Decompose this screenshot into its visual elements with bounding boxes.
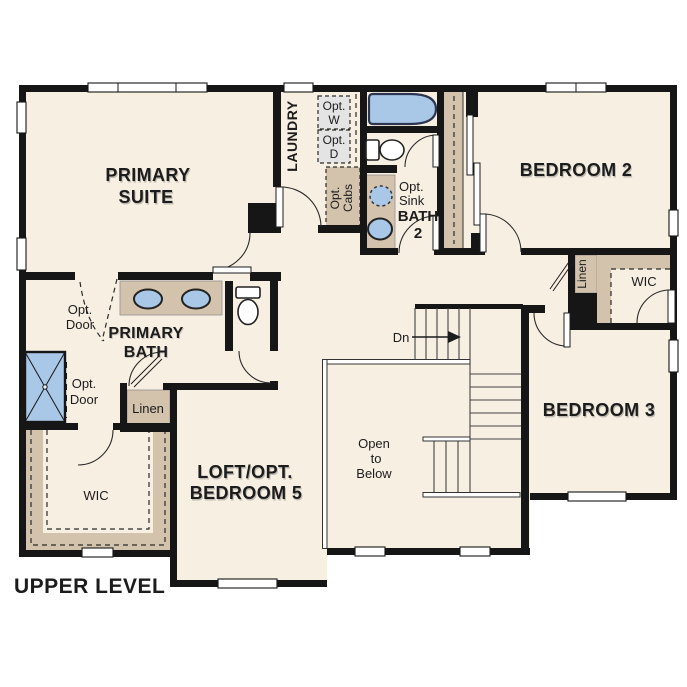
wall-wicleft-top-2 <box>113 423 177 430</box>
label-opt-door-shower-1: Opt. <box>72 376 97 391</box>
wall-loft-left <box>170 387 177 587</box>
label-bedroom2: BEDROOM 2 <box>520 160 633 180</box>
wall-wc-left <box>225 281 233 351</box>
window-wic-bottom <box>82 548 113 557</box>
wall-bed2-bottom-2 <box>521 248 677 255</box>
wall-stair-top <box>415 304 523 309</box>
wall-bath2-bottom-1 <box>363 248 398 255</box>
wall-stair-right <box>521 305 529 555</box>
window-left-1 <box>17 102 26 133</box>
label-bedroom3: BEDROOM 3 <box>543 400 656 420</box>
primary-sink-1 <box>134 290 162 309</box>
door-leaf-wic-right <box>668 290 675 323</box>
bath2-toilet-bowl <box>380 140 404 160</box>
window-stair-bottom-2 <box>460 547 490 556</box>
closet-bypass-panel-2 <box>474 163 480 225</box>
shower <box>25 352 65 422</box>
label-opt-cabs-1: Opt. <box>328 187 342 210</box>
label-bath2-1: BATH <box>398 208 439 225</box>
label-laundry: LAUNDRY <box>284 100 300 172</box>
wic-right-shelf-side <box>597 269 611 323</box>
window-left-2 <box>17 238 26 270</box>
label-opt-door-shower-2: Door <box>70 392 99 407</box>
plan-title: UPPER LEVEL <box>14 575 165 598</box>
wall-bath-bottom-2 <box>163 383 278 390</box>
door-leaf-bath2-wc <box>433 135 439 167</box>
floorplan-page: PRIMARY SUITE LAUNDRY Opt. W Opt. D Opt.… <box>0 0 687 687</box>
label-bath2-2: 2 <box>414 225 422 242</box>
label-opt-w-2: W <box>328 113 340 127</box>
label-opt-d-2: D <box>330 147 339 161</box>
label-opt-sink-1: Opt. <box>399 179 424 194</box>
railing-lower-bottom <box>423 493 520 498</box>
label-loft-2: BEDROOM 5 <box>190 483 303 503</box>
wic-left-shelf-right <box>153 430 170 550</box>
wall-bed3-header <box>521 305 545 313</box>
wall-suite-bottom-1 <box>19 272 75 280</box>
door-leaf-bath-entry <box>213 267 251 273</box>
label-open-below-1: Open <box>358 436 390 451</box>
bathtub <box>369 94 436 124</box>
wall-suite-bottom-3 <box>250 272 281 281</box>
label-loft-1: LOFT/OPT. <box>197 462 293 482</box>
wall-laundry-bottom <box>318 225 363 233</box>
label-linen-left: Linen <box>132 401 164 416</box>
label-opt-sink-2: Sink <box>399 193 425 208</box>
window-laundry-top <box>284 83 313 92</box>
railing-open-top <box>323 360 470 365</box>
window-bed3-bottom <box>568 492 626 501</box>
wall-bath2-tub <box>363 126 440 133</box>
wall-closet-stub-top <box>466 92 478 117</box>
label-primary-suite-2: SUITE <box>118 187 173 207</box>
wall-left <box>19 85 26 557</box>
label-primary-bath-2: BATH <box>124 344 168 361</box>
railing-open-left <box>323 360 328 549</box>
primary-toilet-tank <box>236 287 260 298</box>
floorplan-drawing: PRIMARY SUITE LAUNDRY Opt. W Opt. D Opt.… <box>0 0 687 687</box>
opt-sink-basin <box>370 186 392 206</box>
wic-left-shelf-left <box>26 430 43 550</box>
door-leaf-bed3 <box>564 313 570 347</box>
window-right-1 <box>669 210 678 236</box>
door-leaf-bed2 <box>480 214 486 252</box>
bath2-sink <box>368 219 392 240</box>
label-open-below-3: Below <box>356 466 392 481</box>
bedroom2-closet-shelf <box>443 92 463 248</box>
wall-bath-right <box>270 281 278 351</box>
primary-toilet-bowl <box>238 300 258 325</box>
window-stair-bottom-1 <box>355 547 385 556</box>
label-wic-right: WIC <box>631 274 656 289</box>
window-right-2 <box>669 340 678 372</box>
label-wic-left: WIC <box>83 488 108 503</box>
label-primary-suite-1: PRIMARY <box>105 165 190 185</box>
wall-bed2-bottom-1 <box>440 248 485 255</box>
label-opt-d-1: Opt. <box>323 133 346 147</box>
label-linen-right: Linen <box>575 259 589 288</box>
window-suite-top <box>88 83 207 92</box>
door-leaf-suite <box>276 187 283 227</box>
wall-suite-laundry <box>273 85 281 187</box>
label-opt-cabs-2: Cabs <box>341 184 355 212</box>
label-open-below-2: to <box>371 451 382 466</box>
label-opt-door-bath-2: Door <box>66 317 95 332</box>
wall-suite-bottom-2 <box>118 272 213 280</box>
label-primary-bath-1: PRIMARY <box>108 325 183 342</box>
window-loft-bottom <box>218 579 277 588</box>
wall-bed3-top <box>568 323 677 330</box>
wic-right-shelf-top <box>597 255 670 269</box>
bath2-toilet-tank <box>366 140 379 160</box>
wall-wicleft-top-1 <box>19 423 78 430</box>
wall-bath2-mid <box>363 165 397 173</box>
primary-sink-2 <box>182 290 210 309</box>
railing-lower-top <box>423 437 470 441</box>
label-opt-w-1: Opt. <box>323 99 346 113</box>
label-dn: Dn <box>393 330 410 345</box>
closet-bypass-panel-1 <box>467 115 473 175</box>
label-opt-door-bath-1: Opt. <box>68 302 93 317</box>
